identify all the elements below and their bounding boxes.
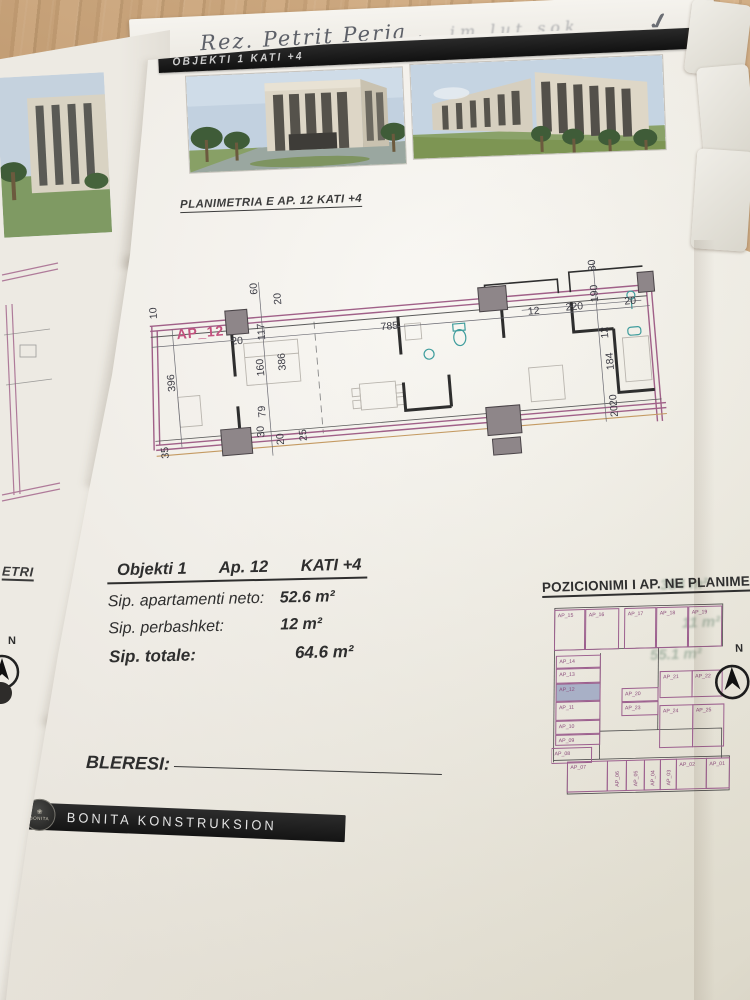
previous-page-plan-fragment (0, 245, 70, 525)
plan-dimension: 785 (380, 320, 399, 333)
previous-page-rendering (0, 72, 112, 237)
key-plan-unit-label: AP_04 (650, 770, 656, 786)
plan-dimension: 20 (231, 335, 244, 348)
tape-crumple (696, 64, 750, 160)
plan-dimension: 35 (159, 446, 172, 459)
footer-company-name: BONITA KONSTRUKSION (17, 808, 277, 833)
previous-page-heading-fragment: ETRI (2, 563, 34, 581)
plan-dimension: 386 (275, 352, 288, 371)
plan-dimension: 190 (588, 284, 601, 303)
plan-dimension: 20 (274, 433, 287, 446)
building-rendering-perspective (410, 55, 665, 159)
plan-dimension: 79 (256, 405, 269, 418)
plan-dimension: 12 (527, 305, 540, 318)
key-plan-unit-label: AP_18 (660, 610, 676, 616)
key-plan-unit-label: AP_16 (589, 612, 605, 618)
key-plan-unit-label: AP_09 (559, 738, 575, 744)
plan-dimension: 20 (624, 295, 637, 308)
key-plan-unit-label: AP_11 (559, 705, 574, 711)
key-plan-unit-label: AP_05 (633, 770, 639, 786)
plan-dimension: 30 (255, 425, 268, 438)
floor-plan-apartment-label: AP_12 (176, 322, 225, 342)
summary-objekti: Objekti 1 (117, 560, 187, 580)
plan-dimension: 10 (147, 307, 160, 320)
summary-title: Objekti 1 Ap. 12 KATI +4 (107, 556, 368, 585)
summary-row-perbashket: Sip. perbashket: 12 m² (108, 614, 408, 639)
summary-kati: KATI +4 (301, 556, 362, 575)
key-plan-unit-label: AP_15 (558, 613, 574, 619)
floor-plan-drawing: 1039635602020117160386785793020251222019… (138, 236, 678, 495)
plan-dimension: 20 (607, 394, 620, 407)
summary-row-neto: Sip. apartamenti neto: 52.6 m² (108, 587, 408, 612)
buyer-signature-line (174, 766, 442, 775)
key-plan-unit-label: AP_10 (559, 724, 575, 730)
photographed-brochure-page: Rez. Petrit Perja , im lut sok ✓ (0, 0, 750, 1000)
tape-crumple (691, 148, 750, 252)
key-plan-unit-label: AP_02 (679, 762, 695, 768)
apartment-summary: Objekti 1 Ap. 12 KATI +4 Sip. apartament… (107, 555, 409, 668)
buyer-label: BLERESI: (86, 752, 170, 774)
building-rendering-front (186, 67, 406, 172)
key-plan-unit-label: AP_13 (559, 672, 575, 678)
plan-dimension: 396 (165, 374, 178, 393)
key-plan-unit-label: AP_03 (666, 770, 672, 786)
summary-ap: Ap. 12 (218, 558, 268, 577)
plan-dimension: 20 (608, 405, 621, 418)
buyer-line: BLERESI: (86, 752, 442, 781)
plan-dimension: 160 (254, 358, 267, 377)
key-plan-unit-label: AP_08 (555, 751, 571, 757)
key-plan-unit-label: AP_12 (559, 687, 575, 693)
plan-dimension: 117 (255, 323, 268, 341)
plan-heading: PLANIMETRIA E AP. 12 KATI +4 (180, 193, 363, 213)
plan-dimension: 220 (565, 300, 584, 313)
svg-text:N: N (8, 635, 16, 647)
key-plan-unit-label: AP_21 (663, 674, 679, 680)
plan-dimension: 12 (598, 326, 611, 339)
plan-dimension: 25 (297, 429, 310, 442)
compass-north-label: N (735, 643, 743, 655)
plan-dimension: 60 (248, 282, 261, 295)
key-plan-unit-label: AP_07 (570, 765, 586, 771)
key-plan-unit-label: AP_06 (615, 771, 621, 787)
plan-dimension: 80 (586, 259, 599, 272)
key-plan-unit-label: AP_17 (628, 611, 644, 617)
plan-dimension: 20 (271, 292, 284, 305)
page-fold-shadow (694, 240, 720, 1000)
key-plan-unit-label: AP_24 (663, 708, 679, 714)
key-plan-unit-label: AP_14 (559, 659, 575, 665)
summary-row-totale: Sip. totale: 64.6 m² (109, 641, 409, 668)
page-footer-bar: ❀ BONITA BONITA KONSTRUKSION (17, 802, 346, 842)
plan-dimension: 184 (604, 352, 617, 371)
key-plan-unit-label: AP_23 (625, 705, 641, 711)
key-plan-unit-label: AP_20 (625, 691, 641, 697)
